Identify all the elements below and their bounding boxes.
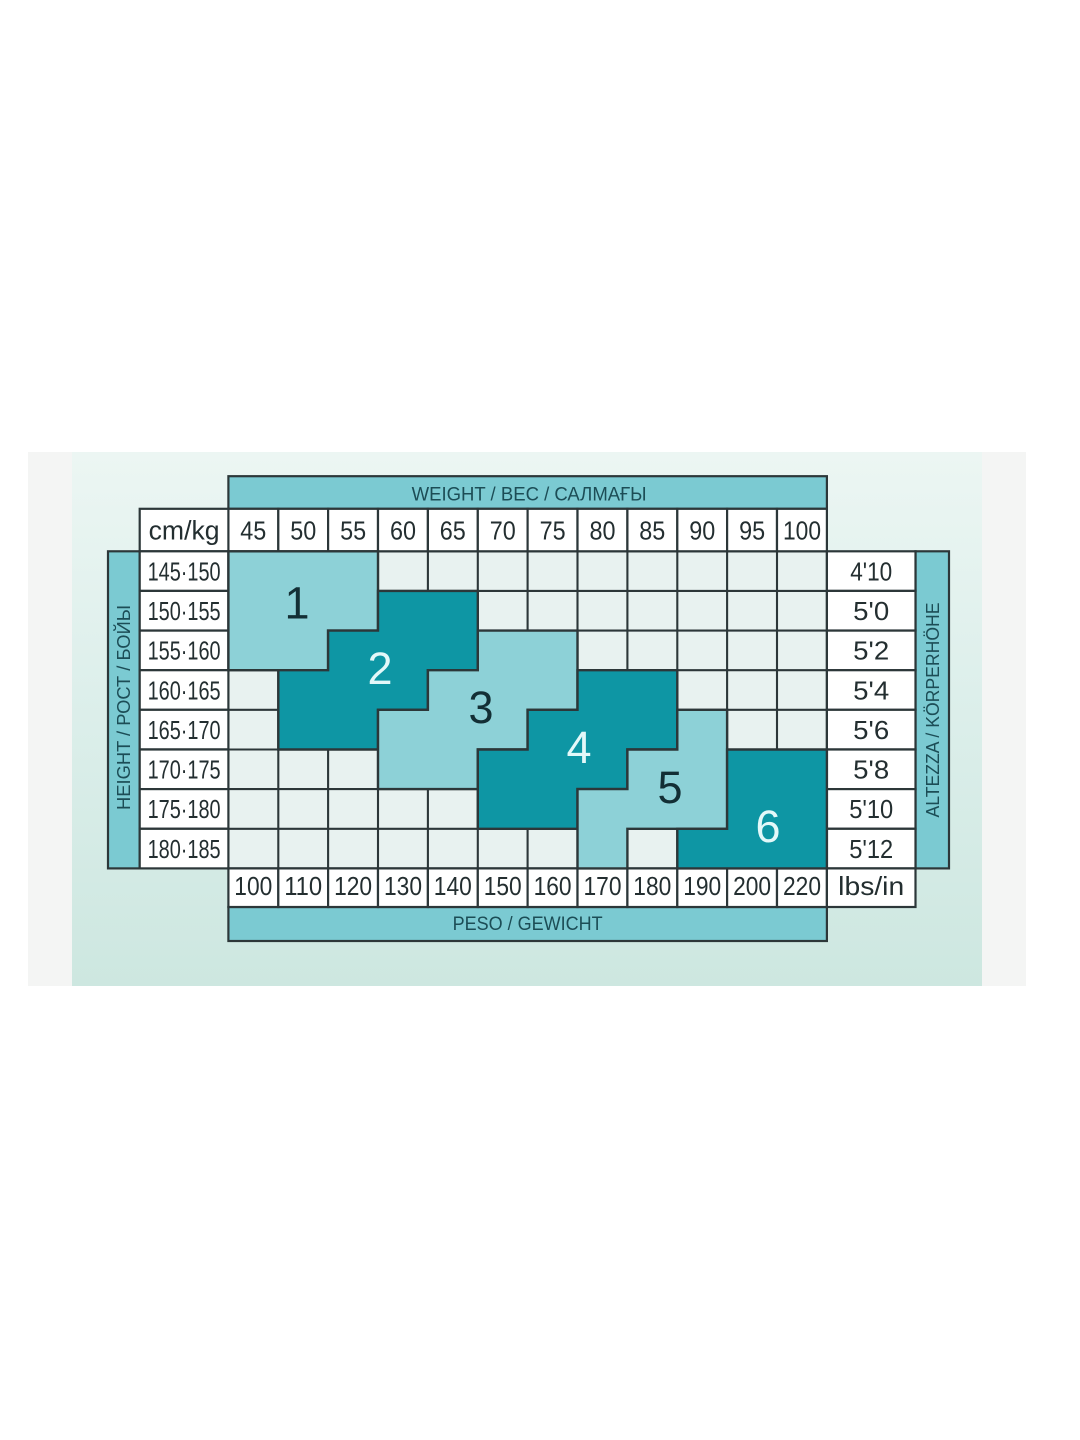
svg-text:5'0: 5'0 bbox=[853, 596, 889, 626]
svg-text:110: 110 bbox=[284, 871, 322, 901]
svg-text:150·155: 150·155 bbox=[148, 596, 221, 626]
svg-text:100: 100 bbox=[234, 871, 272, 901]
svg-text:220: 220 bbox=[783, 871, 821, 901]
svg-text:5'8: 5'8 bbox=[853, 755, 889, 785]
svg-text:5'2: 5'2 bbox=[853, 636, 889, 666]
svg-text:6: 6 bbox=[755, 801, 780, 852]
svg-text:5'6: 5'6 bbox=[853, 715, 889, 745]
svg-text:165·170: 165·170 bbox=[148, 715, 221, 745]
svg-text:4'10: 4'10 bbox=[850, 556, 892, 586]
svg-text:85: 85 bbox=[639, 516, 665, 546]
svg-text:160: 160 bbox=[534, 871, 572, 901]
svg-text:45: 45 bbox=[240, 516, 266, 546]
svg-text:65: 65 bbox=[440, 516, 466, 546]
svg-text:70: 70 bbox=[490, 516, 516, 546]
svg-text:100: 100 bbox=[783, 516, 821, 546]
svg-text:1: 1 bbox=[284, 578, 309, 629]
svg-text:95: 95 bbox=[739, 516, 765, 546]
svg-text:155·160: 155·160 bbox=[148, 636, 221, 666]
svg-text:170: 170 bbox=[584, 871, 622, 901]
svg-text:2: 2 bbox=[367, 643, 392, 694]
svg-text:140: 140 bbox=[434, 871, 472, 901]
svg-text:80: 80 bbox=[590, 516, 616, 546]
svg-text:5'4: 5'4 bbox=[853, 675, 889, 705]
svg-text:75: 75 bbox=[540, 516, 566, 546]
svg-text:200: 200 bbox=[733, 871, 771, 901]
svg-text:ALTEZZA / KÖRPERHÖHE: ALTEZZA / KÖRPERHÖHE bbox=[922, 603, 943, 818]
svg-text:5'10: 5'10 bbox=[849, 794, 893, 824]
svg-text:170·175: 170·175 bbox=[148, 755, 221, 785]
svg-text:3: 3 bbox=[468, 682, 493, 733]
svg-text:145·150: 145·150 bbox=[148, 556, 221, 586]
svg-text:HEIGHT / РОСТ / БОЙЫ: HEIGHT / РОСТ / БОЙЫ bbox=[113, 605, 134, 810]
svg-text:190: 190 bbox=[683, 871, 721, 901]
svg-text:55: 55 bbox=[340, 516, 366, 546]
svg-text:180·185: 180·185 bbox=[148, 834, 221, 864]
svg-text:5: 5 bbox=[657, 762, 682, 813]
svg-text:cm/kg: cm/kg bbox=[149, 516, 220, 546]
svg-text:WEIGHT / ВЕС / САЛМАҒЫ: WEIGHT / ВЕС / САЛМАҒЫ bbox=[412, 484, 647, 506]
svg-text:175·180: 175·180 bbox=[148, 794, 221, 824]
svg-text:4: 4 bbox=[566, 722, 591, 773]
svg-text:120: 120 bbox=[334, 871, 372, 901]
svg-text:50: 50 bbox=[290, 516, 316, 546]
svg-text:90: 90 bbox=[689, 516, 715, 546]
svg-text:150: 150 bbox=[484, 871, 522, 901]
svg-text:lbs/in: lbs/in bbox=[838, 871, 904, 901]
svg-text:5'12: 5'12 bbox=[849, 834, 893, 864]
svg-text:60: 60 bbox=[390, 516, 416, 546]
svg-text:180: 180 bbox=[633, 871, 671, 901]
svg-text:130: 130 bbox=[384, 871, 422, 901]
svg-text:160·165: 160·165 bbox=[148, 675, 221, 705]
svg-text:PESO / GEWICHT: PESO / GEWICHT bbox=[453, 914, 603, 935]
